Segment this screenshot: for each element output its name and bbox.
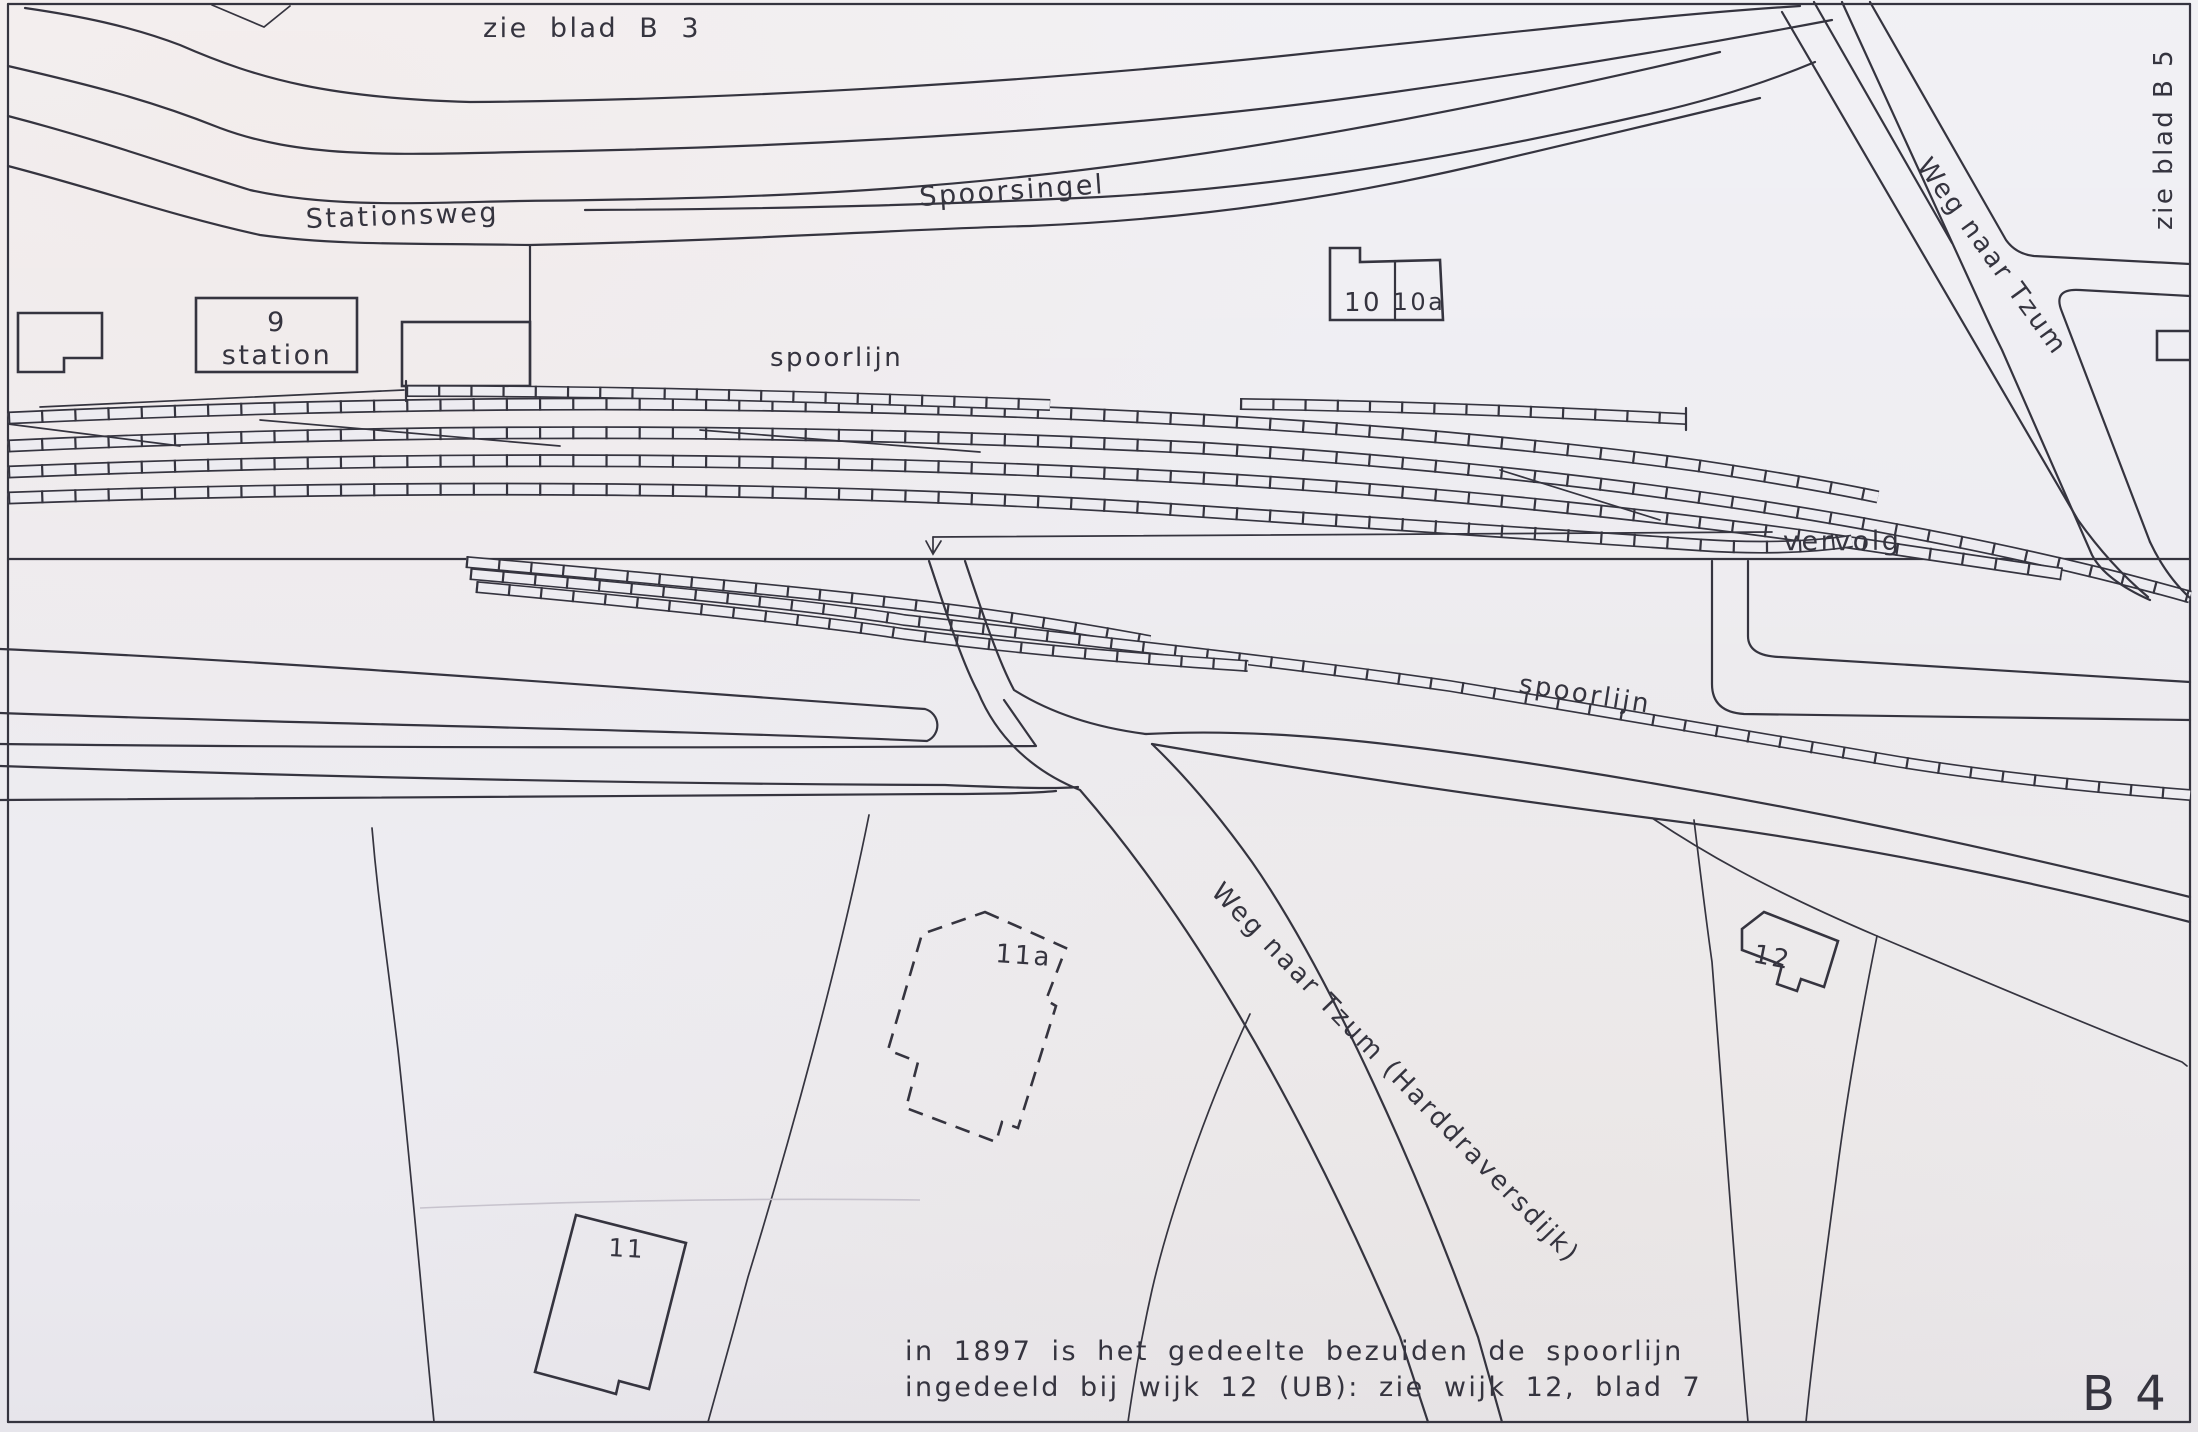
building-11a-number: 11a: [995, 939, 1053, 973]
spoorlijn-top-label: spoorlijn: [770, 343, 903, 373]
vervolg-label: vervolg: [1783, 526, 1901, 557]
note-line-2: ingedeeld bij wijk 12 (UB): zie wijk 12,…: [905, 1372, 1702, 1403]
building-10a-number: 10a: [1393, 288, 1446, 316]
building-11-number: 11: [608, 1233, 646, 1264]
map-canvas: zie blad B 3 Stationsweg Spoorsingel spo…: [0, 0, 2198, 1432]
building-10-number: 10: [1344, 288, 1382, 318]
building-9-number: 9: [267, 307, 287, 338]
sheet-number-label: B 4: [2082, 1366, 2168, 1422]
note-line-1: in 1897 is het gedeelte bezuiden de spoo…: [905, 1336, 1684, 1367]
ref-blad-b3-label: zie blad B 3: [483, 13, 701, 44]
building-9-name: station: [222, 340, 332, 371]
ref-blad-b5-label: zie blad B 5: [2149, 48, 2179, 230]
map-sheet: zie blad B 3 Stationsweg Spoorsingel spo…: [0, 0, 2198, 1432]
